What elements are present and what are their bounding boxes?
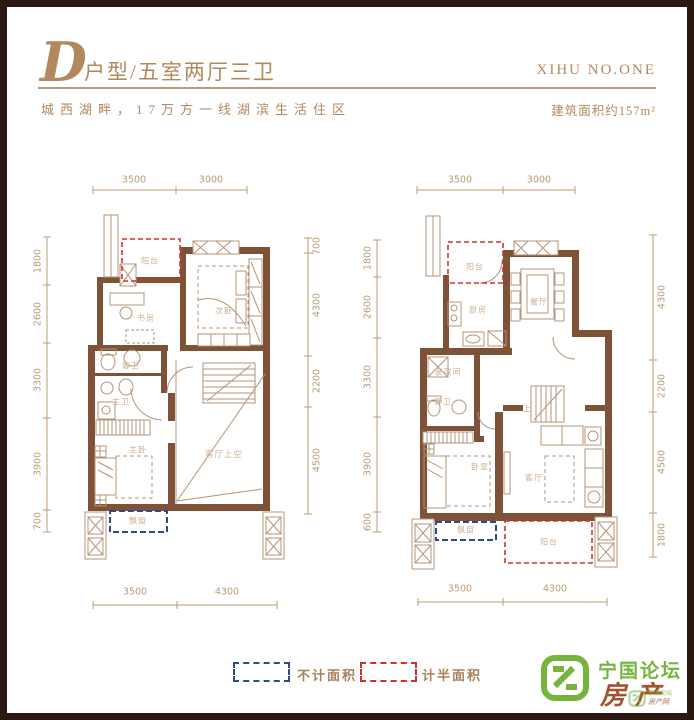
dim-label: 4300 xyxy=(657,285,668,309)
dim-label: 4500 xyxy=(312,448,323,472)
dim-label: 4300 xyxy=(312,293,323,317)
room-label-living: 客厅 xyxy=(525,473,543,484)
dim-label: 4500 xyxy=(657,450,668,474)
room-label-void: 客厅上空 xyxy=(205,448,243,460)
dimension-lines xyxy=(43,186,657,609)
dim-label: 3000 xyxy=(527,175,551,186)
dim-label: 3500 xyxy=(122,175,146,186)
room-label-guest-bath: 客卫 xyxy=(434,397,452,408)
floorplan-page: D 户型/五室两厅三卫 XIHU NO.ONE 城西湖畔，17万方一线湖滨生活住… xyxy=(0,0,694,720)
room-label-bay-window: 飘窗 xyxy=(129,516,147,527)
legend-label-half-counted: 计半面积 xyxy=(422,665,482,684)
room-label-balcony: 阳台 xyxy=(466,262,484,273)
dim-label: 3500 xyxy=(448,584,472,595)
dim-label: 3000 xyxy=(199,175,223,186)
dim-label: 3900 xyxy=(363,452,374,476)
brand-name: XIHU NO.ONE xyxy=(537,62,657,79)
dim-label: 700 xyxy=(312,237,323,255)
dim-label: 2200 xyxy=(312,369,323,393)
room-label-study: 书房 xyxy=(137,313,155,324)
dim-label: 3300 xyxy=(33,368,44,392)
built-area: 建筑面积约157m² xyxy=(551,100,656,119)
room-label-guest-bath: 客卫 xyxy=(122,361,140,372)
project-slogan: 城西湖畔，17万方一线湖滨生活住区 xyxy=(41,99,351,118)
room-label-balcony2: 阳台 xyxy=(540,537,558,548)
dim-label: 3900 xyxy=(33,452,44,476)
room-label-dining: 餐厅 xyxy=(530,297,548,308)
dim-label: 3500 xyxy=(123,587,147,598)
dim-label: 2600 xyxy=(363,295,374,319)
dim-label: 700 xyxy=(33,512,44,530)
room-label-master-bed: 主卧 xyxy=(129,445,147,456)
watermark-title: 宁国论坛 xyxy=(648,690,672,697)
dim-label: 3500 xyxy=(448,175,472,186)
header-divider xyxy=(38,87,656,89)
room-label-bay-window: 飘窗 xyxy=(457,525,475,536)
forum-logo-icon xyxy=(540,655,590,701)
plan-type-letter: D xyxy=(40,30,87,94)
dim-label: 1800 xyxy=(363,246,374,270)
legend-swatch-half-counted xyxy=(360,662,417,682)
dim-label: 2200 xyxy=(657,374,668,398)
dim-label: 1800 xyxy=(657,523,668,547)
room-label-bedroom: 卧室 xyxy=(471,462,489,473)
dim-label: 4300 xyxy=(543,584,567,595)
dim-label: 4300 xyxy=(215,587,239,598)
dim-label: 3300 xyxy=(363,365,374,389)
room-label-bedroom2: 次卧 xyxy=(215,306,233,317)
logo-watermark: 宁国论坛 房产网 xyxy=(628,690,672,707)
room-label-master-bath: 主卫 xyxy=(112,397,130,408)
dim-label: 2600 xyxy=(33,302,44,326)
stairs-up-label: 上 xyxy=(523,404,532,415)
plan-type-title: 户型/五室两厅三卫 xyxy=(84,56,276,86)
watermark-subtitle: 房产网 xyxy=(648,697,672,707)
dim-label: 600 xyxy=(363,513,374,531)
dim-label: 1800 xyxy=(33,249,44,273)
room-label-balcony: 阳台 xyxy=(141,256,159,267)
room-label-laundry: 家政间 xyxy=(435,367,462,378)
legend-label-not-counted: 不计面积 xyxy=(297,665,357,684)
room-label-kitchen: 厨房 xyxy=(469,305,487,316)
forum-logo-icon-small xyxy=(628,690,646,707)
legend-swatch-not-counted xyxy=(233,662,290,682)
